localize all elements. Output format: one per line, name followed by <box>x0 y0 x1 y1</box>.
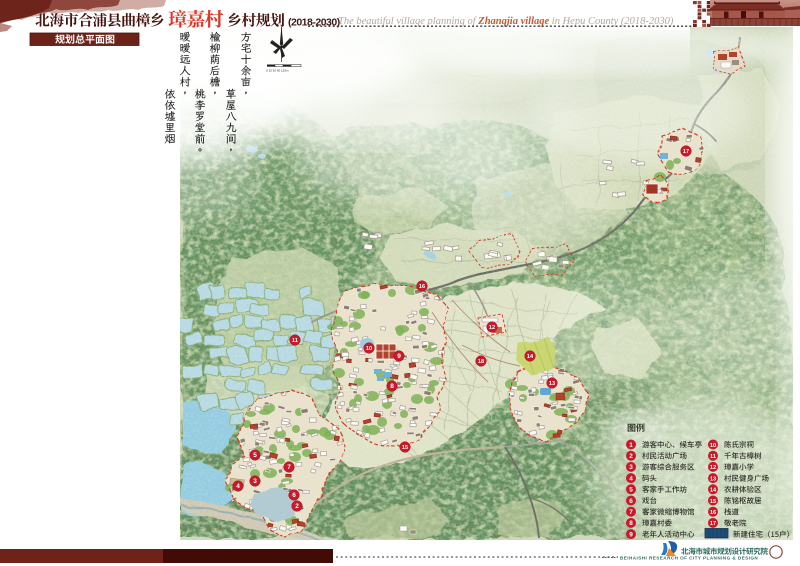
svg-text:8: 8 <box>390 383 394 390</box>
svg-text:2: 2 <box>629 453 633 460</box>
svg-text:15: 15 <box>710 499 716 505</box>
svg-text:14: 14 <box>527 354 534 360</box>
svg-text:3: 3 <box>253 478 257 485</box>
svg-text:4: 4 <box>629 475 633 482</box>
svg-text:8: 8 <box>629 520 633 527</box>
svg-text:14: 14 <box>710 488 717 494</box>
svg-text:4: 4 <box>236 483 240 490</box>
svg-text:9: 9 <box>629 531 633 538</box>
svg-text:0 15 30 60 120m: 0 15 30 60 120m <box>266 69 289 73</box>
svg-text:10: 10 <box>710 443 716 449</box>
svg-text:12: 12 <box>710 465 716 471</box>
svg-text:The beautiful village planning: The beautiful village planning of Zhangj… <box>338 16 674 27</box>
svg-text:12: 12 <box>489 325 495 331</box>
svg-text:17: 17 <box>710 521 716 527</box>
svg-text:2: 2 <box>295 503 299 510</box>
svg-text:5: 5 <box>253 452 257 459</box>
svg-text:6: 6 <box>629 498 633 505</box>
svg-text:BEIHAISHI RESEARCH OF CITY PLA: BEIHAISHI RESEARCH OF CITY PLANNING & DE… <box>620 556 758 561</box>
svg-text:7: 7 <box>287 464 291 471</box>
svg-text:13: 13 <box>549 381 555 387</box>
svg-text:13: 13 <box>710 476 716 482</box>
svg-text:16: 16 <box>419 284 425 290</box>
svg-text:10: 10 <box>366 346 372 352</box>
svg-text:18: 18 <box>478 359 484 365</box>
svg-text:11: 11 <box>710 454 716 460</box>
svg-text:6: 6 <box>292 492 296 499</box>
svg-text:5: 5 <box>629 487 633 494</box>
svg-text:11: 11 <box>292 338 298 344</box>
svg-text:9: 9 <box>397 353 401 360</box>
svg-text:17: 17 <box>683 149 689 155</box>
svg-text:1: 1 <box>629 442 633 449</box>
svg-text:7: 7 <box>629 509 633 516</box>
svg-text:15: 15 <box>402 445 408 451</box>
svg-text:3: 3 <box>629 464 633 471</box>
svg-text:16: 16 <box>710 510 716 516</box>
